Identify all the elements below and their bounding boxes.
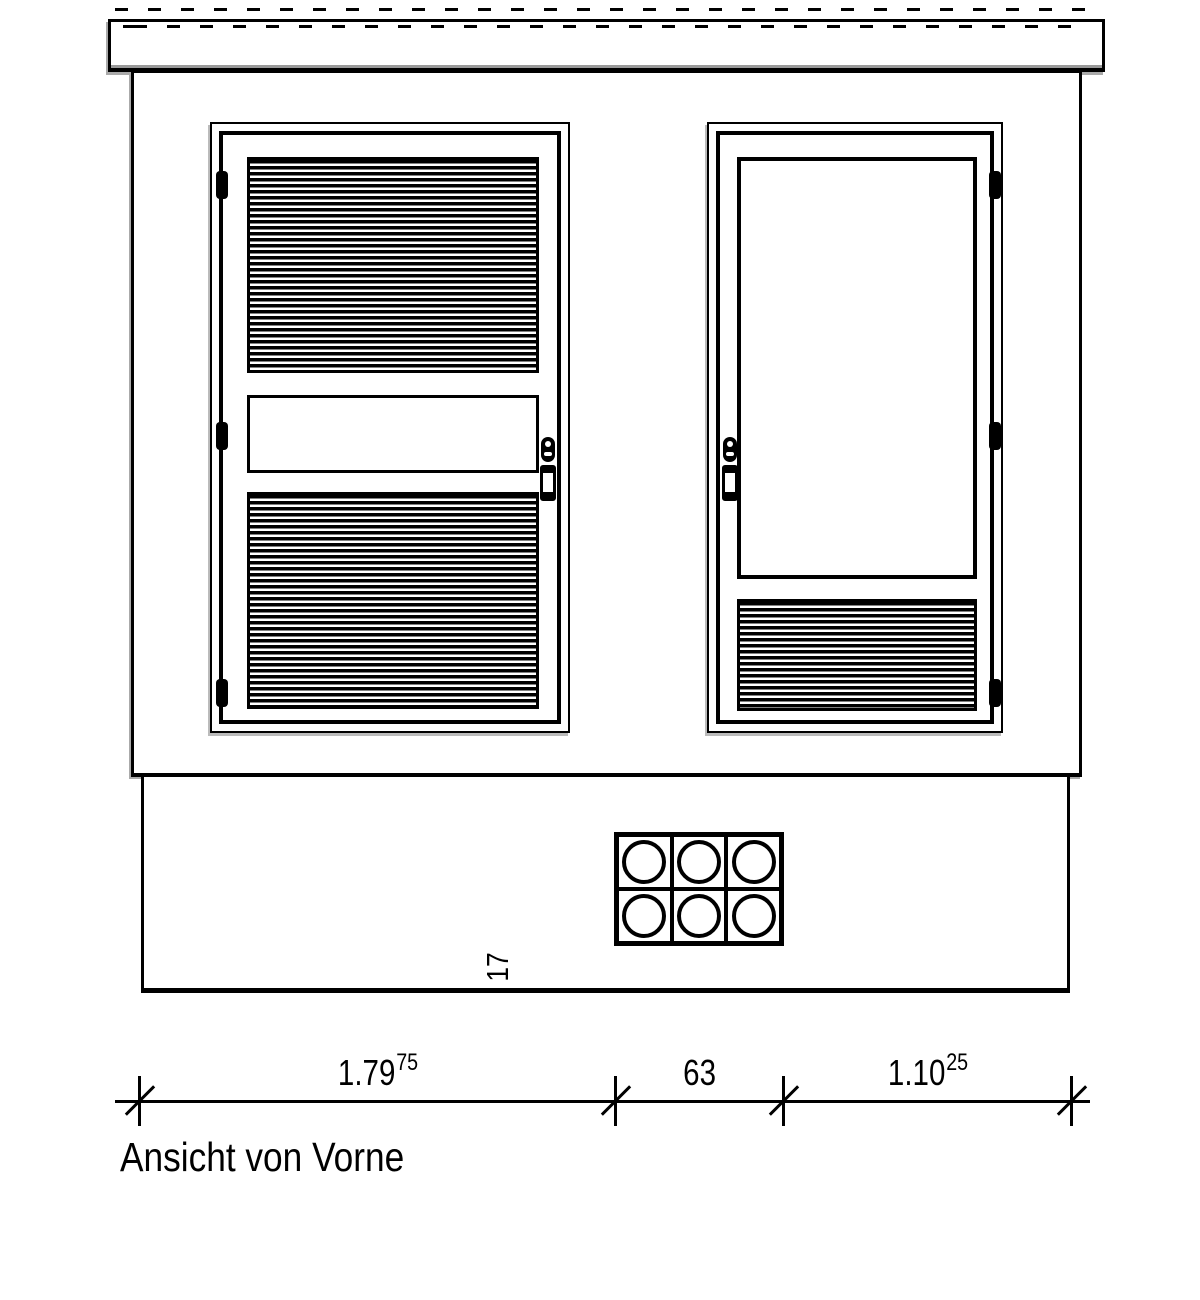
dimension-tick xyxy=(119,1076,161,1126)
right-door xyxy=(707,122,1003,733)
hinge-icon xyxy=(216,171,228,199)
cable-entry-circle-icon xyxy=(732,840,776,884)
door-handle-icon xyxy=(722,465,738,501)
cable-entry-circle-icon xyxy=(677,894,721,938)
dimension-value: 1.79 xyxy=(338,1052,395,1093)
dimension-label-right: 1.1025 xyxy=(888,1051,968,1094)
dimension-tick xyxy=(595,1076,637,1126)
cable-entry-cell xyxy=(672,835,727,889)
roof-hidden-edge-top xyxy=(115,8,1090,11)
dimension-label-left: 1.7975 xyxy=(338,1051,418,1094)
lock-cylinder-icon xyxy=(723,437,737,462)
cabinet-base xyxy=(141,777,1070,993)
hinge-icon xyxy=(216,422,228,450)
right-door-louver xyxy=(737,599,977,711)
hinge-icon xyxy=(216,679,228,707)
cable-entry-grid xyxy=(614,832,784,946)
base-height-label: 17 xyxy=(472,942,524,993)
cable-entry-cell xyxy=(672,889,727,943)
left-door-blind-panel xyxy=(247,395,539,473)
cable-entry-circle-icon xyxy=(732,894,776,938)
dimension-tick xyxy=(1051,1076,1093,1126)
right-door-blind-panel xyxy=(737,157,977,579)
door-handle-icon xyxy=(540,465,556,501)
left-door-louver-bottom xyxy=(247,492,539,709)
dimension-superscript: 75 xyxy=(396,1049,418,1076)
left-door xyxy=(210,122,570,733)
left-door-louver-top xyxy=(247,157,539,373)
drawing-canvas: 17 1.7975 63 1.1025 Ansicht von Vorne xyxy=(0,0,1200,1300)
cable-entry-cell xyxy=(617,835,672,889)
cable-entry-cell xyxy=(617,889,672,943)
lock-cylinder-icon xyxy=(541,437,555,462)
hinge-icon xyxy=(989,679,1001,707)
dimension-superscript: 25 xyxy=(946,1049,968,1076)
cable-entry-circle-icon xyxy=(622,840,666,884)
dimension-value: 63 xyxy=(683,1052,716,1093)
roof-hidden-edge-inner xyxy=(118,25,1086,28)
cable-entry-circle-icon xyxy=(677,840,721,884)
hinge-icon xyxy=(989,422,1001,450)
cable-entry-cell xyxy=(726,835,781,889)
dimension-value: 1.10 xyxy=(888,1052,945,1093)
cable-entry-cell xyxy=(726,889,781,943)
view-title: Ansicht von Vorne xyxy=(120,1134,404,1181)
dimension-label-middle: 63 xyxy=(683,1051,717,1094)
dimension-tick xyxy=(763,1076,805,1126)
hinge-icon xyxy=(989,171,1001,199)
cable-entry-circle-icon xyxy=(622,894,666,938)
